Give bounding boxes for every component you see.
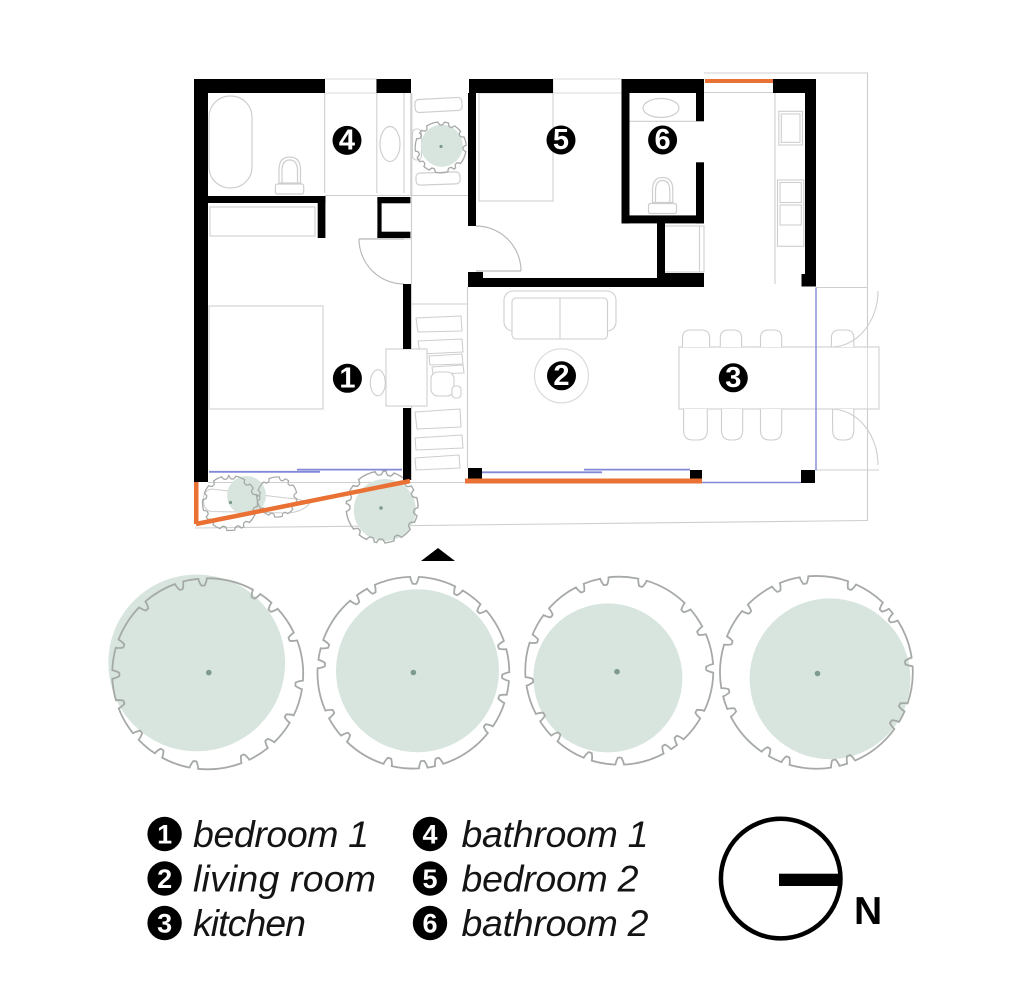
svg-text:living room: living room [193,858,376,900]
svg-text:4: 4 [339,124,355,156]
svg-text:2: 2 [157,864,172,894]
svg-text:5: 5 [422,864,437,894]
svg-text:bathroom 1: bathroom 1 [462,813,649,855]
svg-text:4: 4 [422,820,437,850]
svg-text:5: 5 [553,124,569,156]
svg-text:1: 1 [339,362,355,394]
svg-text:bedroom 1: bedroom 1 [193,813,369,855]
svg-text:6: 6 [655,124,671,156]
svg-text:2: 2 [553,360,569,392]
svg-text:1: 1 [157,820,172,850]
svg-text:3: 3 [157,909,172,939]
svg-text:kitchen: kitchen [193,902,306,944]
svg-text:6: 6 [422,909,437,939]
svg-text:bedroom 2: bedroom 2 [462,858,639,900]
svg-text:N: N [854,890,882,933]
svg-text:bathroom 2: bathroom 2 [462,902,649,944]
svg-text:3: 3 [725,362,741,394]
